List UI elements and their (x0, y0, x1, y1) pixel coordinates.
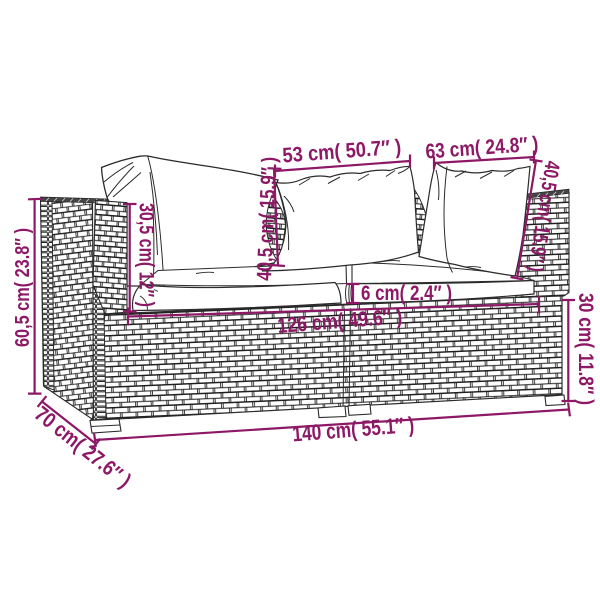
svg-text:60,5 cm( 23.8″ ): 60,5 cm( 23.8″ ) (12, 228, 34, 347)
svg-text:6 cm( 2.4″ ): 6 cm( 2.4″ ) (361, 281, 452, 305)
svg-text:30,5 cm( 12″ ): 30,5 cm( 12″ ) (135, 203, 158, 307)
svg-text:30 cm( 11.8″ ): 30 cm( 11.8″ ) (574, 293, 597, 405)
